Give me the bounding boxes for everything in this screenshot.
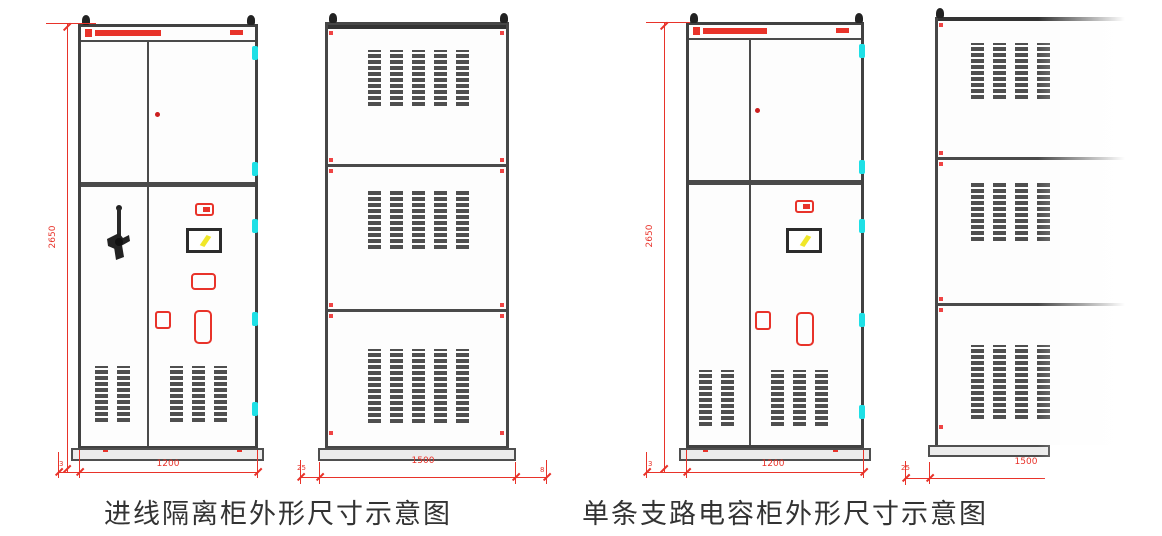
- lifting-lug: [247, 15, 255, 25]
- corner-marker: [500, 303, 504, 307]
- corner-marker: [329, 158, 333, 162]
- switch-handle-icon: [105, 205, 131, 263]
- plinth-tick: [703, 450, 708, 452]
- corner-marker: [939, 151, 943, 155]
- lower-door-split-line: [749, 185, 751, 445]
- width-dimension-line: [646, 472, 864, 473]
- hinge: [859, 405, 865, 419]
- plinth-tick: [237, 450, 242, 452]
- meter-flash-icon: [800, 235, 811, 247]
- hinge: [859, 219, 865, 233]
- nameplate-text-band: [95, 30, 161, 36]
- width-dimension-label: 1200: [745, 459, 801, 469]
- door-lock-dot: [755, 108, 760, 113]
- hinge: [252, 219, 258, 233]
- capacitor-cabinet-front-view: [686, 22, 864, 448]
- top-rail: [328, 25, 506, 29]
- corner-marker: [500, 431, 504, 435]
- corner-marker: [329, 314, 333, 318]
- corner-marker: [329, 431, 333, 435]
- width-dimension-line: [58, 472, 258, 473]
- corner-marker: [939, 162, 943, 166]
- lifting-lug: [690, 13, 698, 23]
- upper-door-split-line: [749, 40, 751, 182]
- section-divider: [328, 164, 506, 167]
- corner-marker: [329, 303, 333, 307]
- depth-dimension-label: 1500: [398, 456, 448, 466]
- nameplate-model-block: [230, 30, 243, 35]
- cabinet-plinth: [928, 445, 1050, 457]
- nameplate-logo-block: [85, 29, 92, 37]
- corner-marker: [500, 158, 504, 162]
- hinge: [859, 313, 865, 327]
- indicator-lamp-badge: [195, 203, 214, 216]
- mid-divider: [689, 180, 861, 185]
- corner-marker: [500, 314, 504, 318]
- switch-operating-handle: [105, 205, 131, 267]
- door-latch-frame: [755, 311, 771, 330]
- plinth-dimension-label: 3: [59, 460, 63, 468]
- lifting-lug: [329, 13, 337, 23]
- height-dimension-label: 2650: [48, 219, 58, 255]
- handle-recess-frame: [194, 310, 212, 344]
- lower-door-split-line: [147, 187, 149, 446]
- lifting-lug: [855, 13, 863, 23]
- cabinet-dimension-diagram: 2650 3 1200 25 1500 8: [0, 0, 1162, 536]
- door-latch-frame: [155, 311, 171, 329]
- dim-extension-line: [546, 460, 547, 484]
- side-louver-vents-top: [368, 50, 469, 108]
- height-dimension-label: 2650: [645, 218, 655, 254]
- right-door-louver-vents: [771, 370, 828, 428]
- corner-marker: [939, 23, 943, 27]
- height-dimension-line: [664, 23, 665, 472]
- isolation-cabinet-side-view: [325, 22, 509, 449]
- depth-dimension-line: [300, 477, 547, 478]
- plinth-dimension-label: 3: [648, 460, 652, 468]
- dim-extension-line: [686, 450, 687, 478]
- lifting-lug: [936, 8, 944, 18]
- dim-extension-line: [319, 462, 320, 484]
- left-door-louver-vents: [699, 370, 734, 428]
- plinth-tick: [103, 450, 108, 452]
- hinge: [252, 312, 258, 326]
- nameplate-text-band: [703, 28, 767, 34]
- side-left-dimension-label: 25: [901, 464, 910, 472]
- dim-extension-line: [79, 450, 80, 478]
- dim-extension-line: [257, 450, 258, 478]
- mid-divider: [81, 182, 255, 187]
- corner-marker: [500, 169, 504, 173]
- width-dimension-label: 1200: [140, 459, 196, 469]
- isolation-cabinet-front-view: [78, 24, 258, 449]
- side-louver-vents-middle: [368, 189, 469, 251]
- meter-display-window: [786, 228, 822, 253]
- meter-flash-icon: [200, 235, 211, 247]
- pushbutton-frame: [191, 273, 216, 290]
- meter-display-window: [186, 228, 222, 253]
- indicator-lamp-fill: [803, 204, 810, 209]
- left-door-louver-vents: [95, 366, 130, 424]
- lifting-lug: [500, 13, 508, 23]
- section-divider: [328, 309, 506, 312]
- hinge: [252, 402, 258, 416]
- side-left-dimension-label: 25: [297, 464, 306, 472]
- hinge: [252, 162, 258, 176]
- figure2-caption: 单条支路电容柜外形尺寸示意图: [582, 492, 982, 531]
- corner-marker: [939, 425, 943, 429]
- dim-extension-line: [515, 462, 516, 484]
- nameplate-logo-block: [693, 27, 700, 35]
- corner-marker: [329, 31, 333, 35]
- indicator-lamp-badge: [795, 200, 814, 213]
- dim-extension-line: [863, 450, 864, 478]
- indicator-lamp-fill: [203, 207, 210, 212]
- door-lock-dot: [155, 112, 160, 117]
- nameplate-model-block: [836, 28, 849, 33]
- hinge: [859, 160, 865, 174]
- upper-door-split-line: [147, 42, 149, 184]
- side-louver-vents-bottom: [368, 349, 469, 425]
- height-dimension-line: [67, 24, 68, 472]
- right-door-louver-vents: [170, 366, 227, 424]
- corner-marker: [329, 169, 333, 173]
- corner-marker: [939, 297, 943, 301]
- corner-marker: [939, 308, 943, 312]
- nameplate-divider-line: [689, 38, 861, 40]
- figure1-caption: 进线隔离柜外形尺寸示意图: [78, 492, 478, 531]
- handle-recess-frame: [796, 312, 814, 346]
- dim-extension-line: [929, 462, 930, 484]
- right-edge-fade: [1038, 0, 1162, 492]
- dim-extension-line: [646, 452, 647, 478]
- plinth-tick: [833, 450, 838, 452]
- nameplate-divider-line: [81, 40, 255, 42]
- hinge: [859, 44, 865, 58]
- corner-marker: [500, 31, 504, 35]
- side-right-dimension-label: 8: [540, 466, 544, 474]
- hinge: [252, 46, 258, 60]
